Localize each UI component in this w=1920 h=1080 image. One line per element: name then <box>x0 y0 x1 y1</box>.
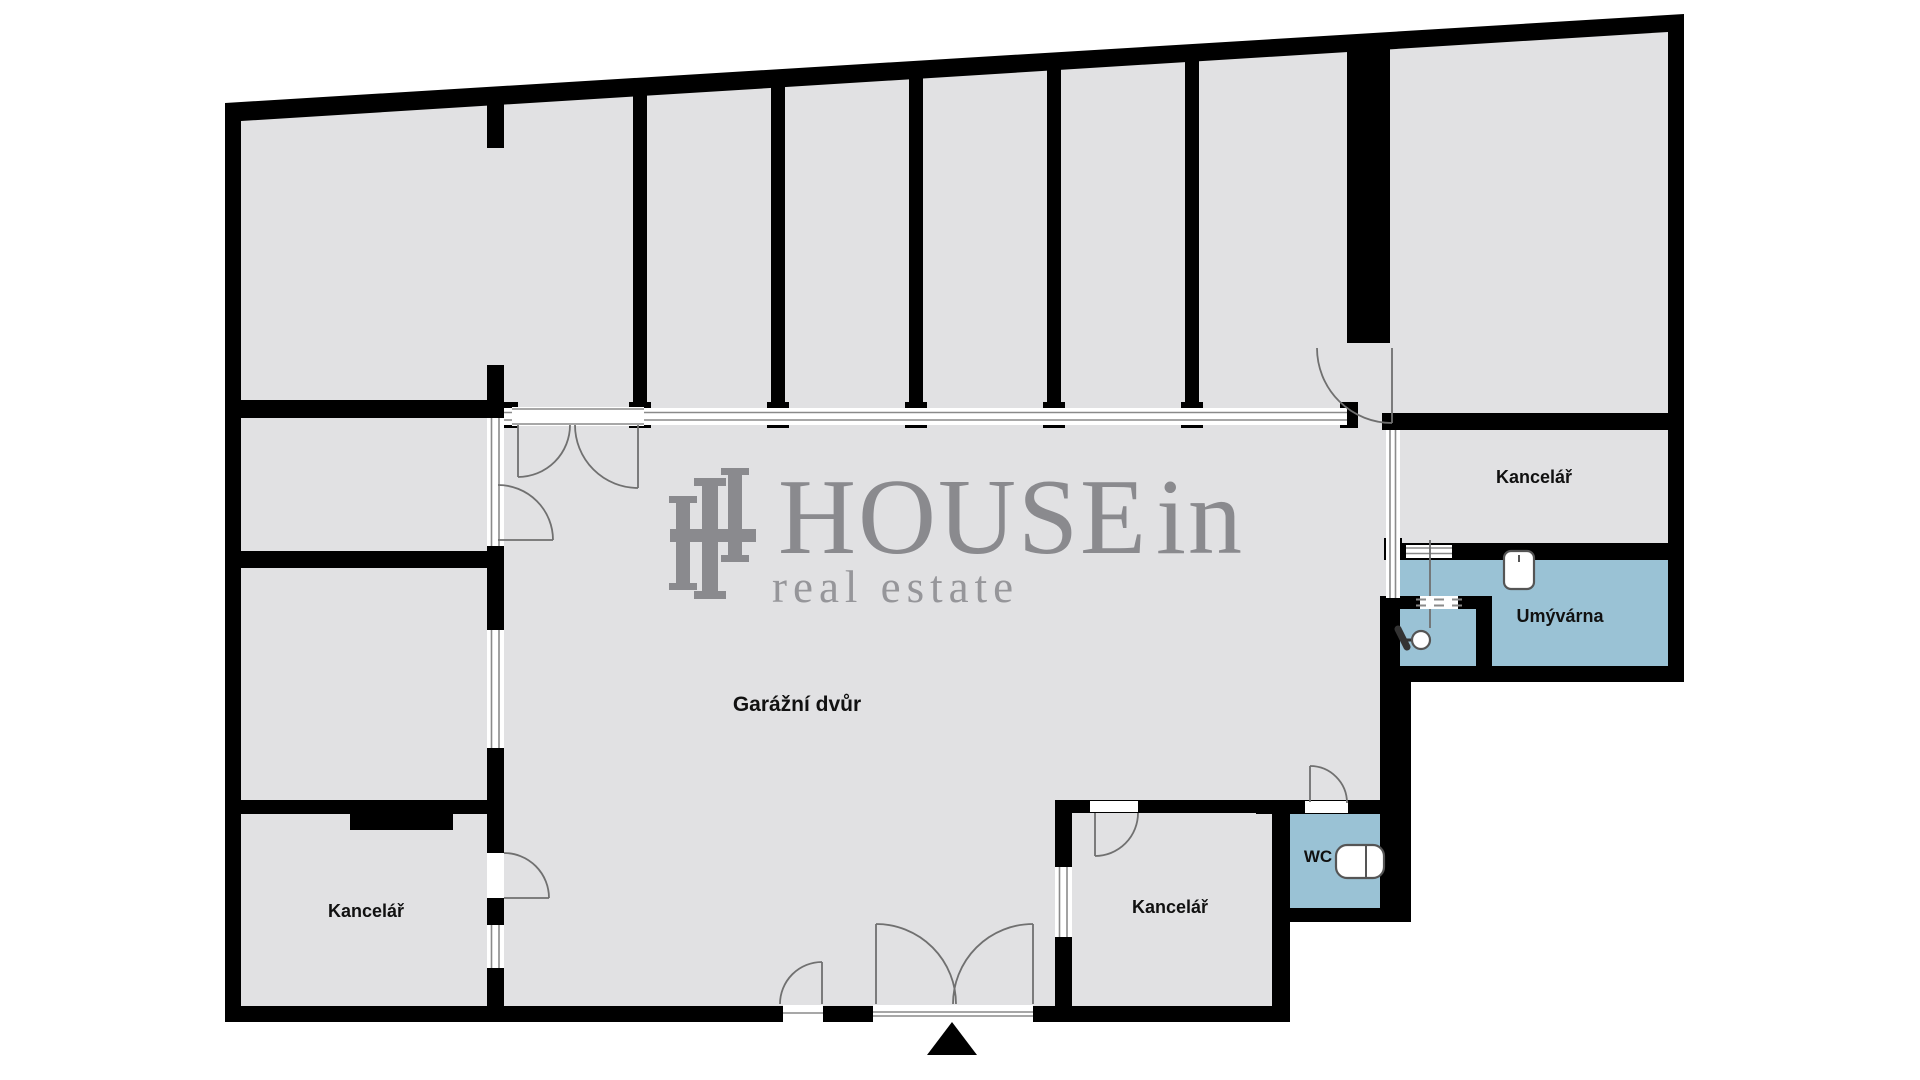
room-label-office-bottom-middle: Kancelář <box>1132 897 1208 917</box>
window-band <box>504 407 1347 426</box>
sink-icon <box>1504 551 1534 589</box>
logo-wordmark: HOUSEin <box>778 458 1244 577</box>
room-label-washroom: Umývárna <box>1516 606 1604 626</box>
room-label-office-bottom-left: Kancelář <box>328 901 404 921</box>
window-office-bottom-middle <box>1055 867 1072 937</box>
room-label-garage: Garážní dvůr <box>733 693 861 716</box>
floor-plan: HOUSEin real estate Garážní dvůr Kancelá… <box>0 0 1920 1080</box>
window-washroom-dashed <box>1416 596 1462 609</box>
window-bottom-doors <box>783 1005 1033 1022</box>
room-label-wc: WC <box>1304 847 1332 866</box>
toilet-icon <box>1336 845 1384 878</box>
floor-plan-page: HOUSEin real estate Garážní dvůr Kancelá… <box>0 0 1920 1080</box>
room-label-office-top-right: Kancelář <box>1496 467 1572 487</box>
window-left-column <box>487 418 504 968</box>
entrance-arrow-icon <box>927 1022 977 1055</box>
logo-tagline: real estate <box>772 562 1019 612</box>
